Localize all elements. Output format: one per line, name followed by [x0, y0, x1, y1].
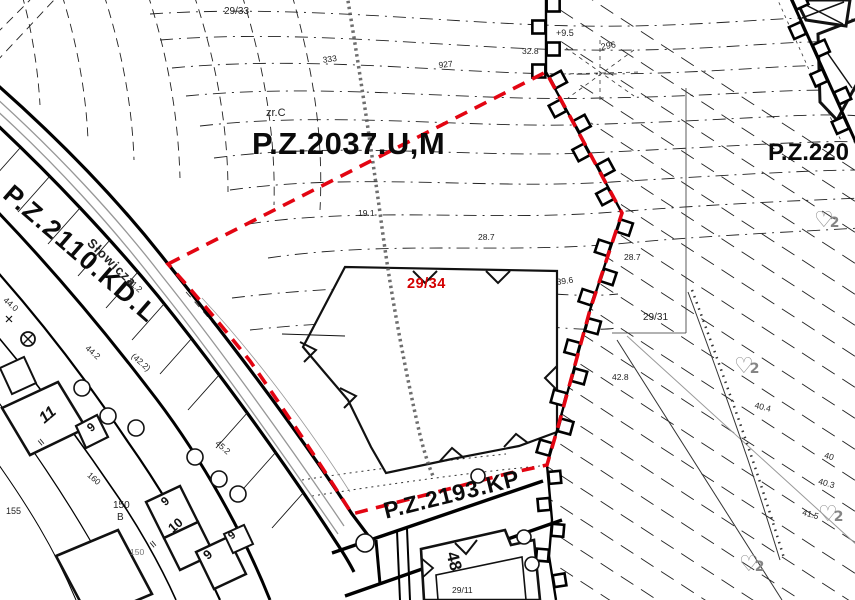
tree-count-label: 2	[755, 559, 765, 575]
map-annotation: zr.C	[266, 107, 286, 119]
map-annotation: 28.7	[624, 252, 641, 262]
map-annotation: 155	[6, 506, 21, 516]
map-annotation: +9.5	[556, 28, 574, 38]
tree-count-label: 2	[750, 361, 760, 377]
map-annotation: 150	[130, 547, 144, 557]
map-annotation: 29/33	[224, 6, 249, 17]
map-annotation: 29/11	[452, 585, 473, 595]
zoning-plan-map: P.Z.2037.U,M P.Z.220 P.Z.2110.KD.L Słowi…	[0, 0, 855, 600]
tree-group-symbol: ♡2	[734, 354, 759, 379]
map-annotation: 28.7	[478, 232, 495, 242]
survey-marker	[6, 316, 35, 346]
tree-group-symbol: ♡2	[814, 208, 839, 233]
map-annotation: 333	[322, 53, 337, 65]
map-annotation: B	[117, 512, 124, 523]
map-annotation: 42.8	[612, 372, 629, 382]
tree-group-symbol: ♡2	[818, 502, 843, 527]
map-annotation: 29/31	[643, 312, 668, 323]
tree-group-symbol: ♡2	[739, 552, 764, 577]
map-annotation: 19.1	[358, 208, 375, 218]
map-annotation: 32.8	[522, 46, 539, 56]
tree-count-label: 2	[830, 215, 840, 231]
tree-count-label: 2	[834, 509, 844, 525]
map-annotation: 927	[438, 59, 453, 70]
road-cross-ticks	[0, 148, 304, 528]
map-annotation: 150	[113, 500, 130, 511]
